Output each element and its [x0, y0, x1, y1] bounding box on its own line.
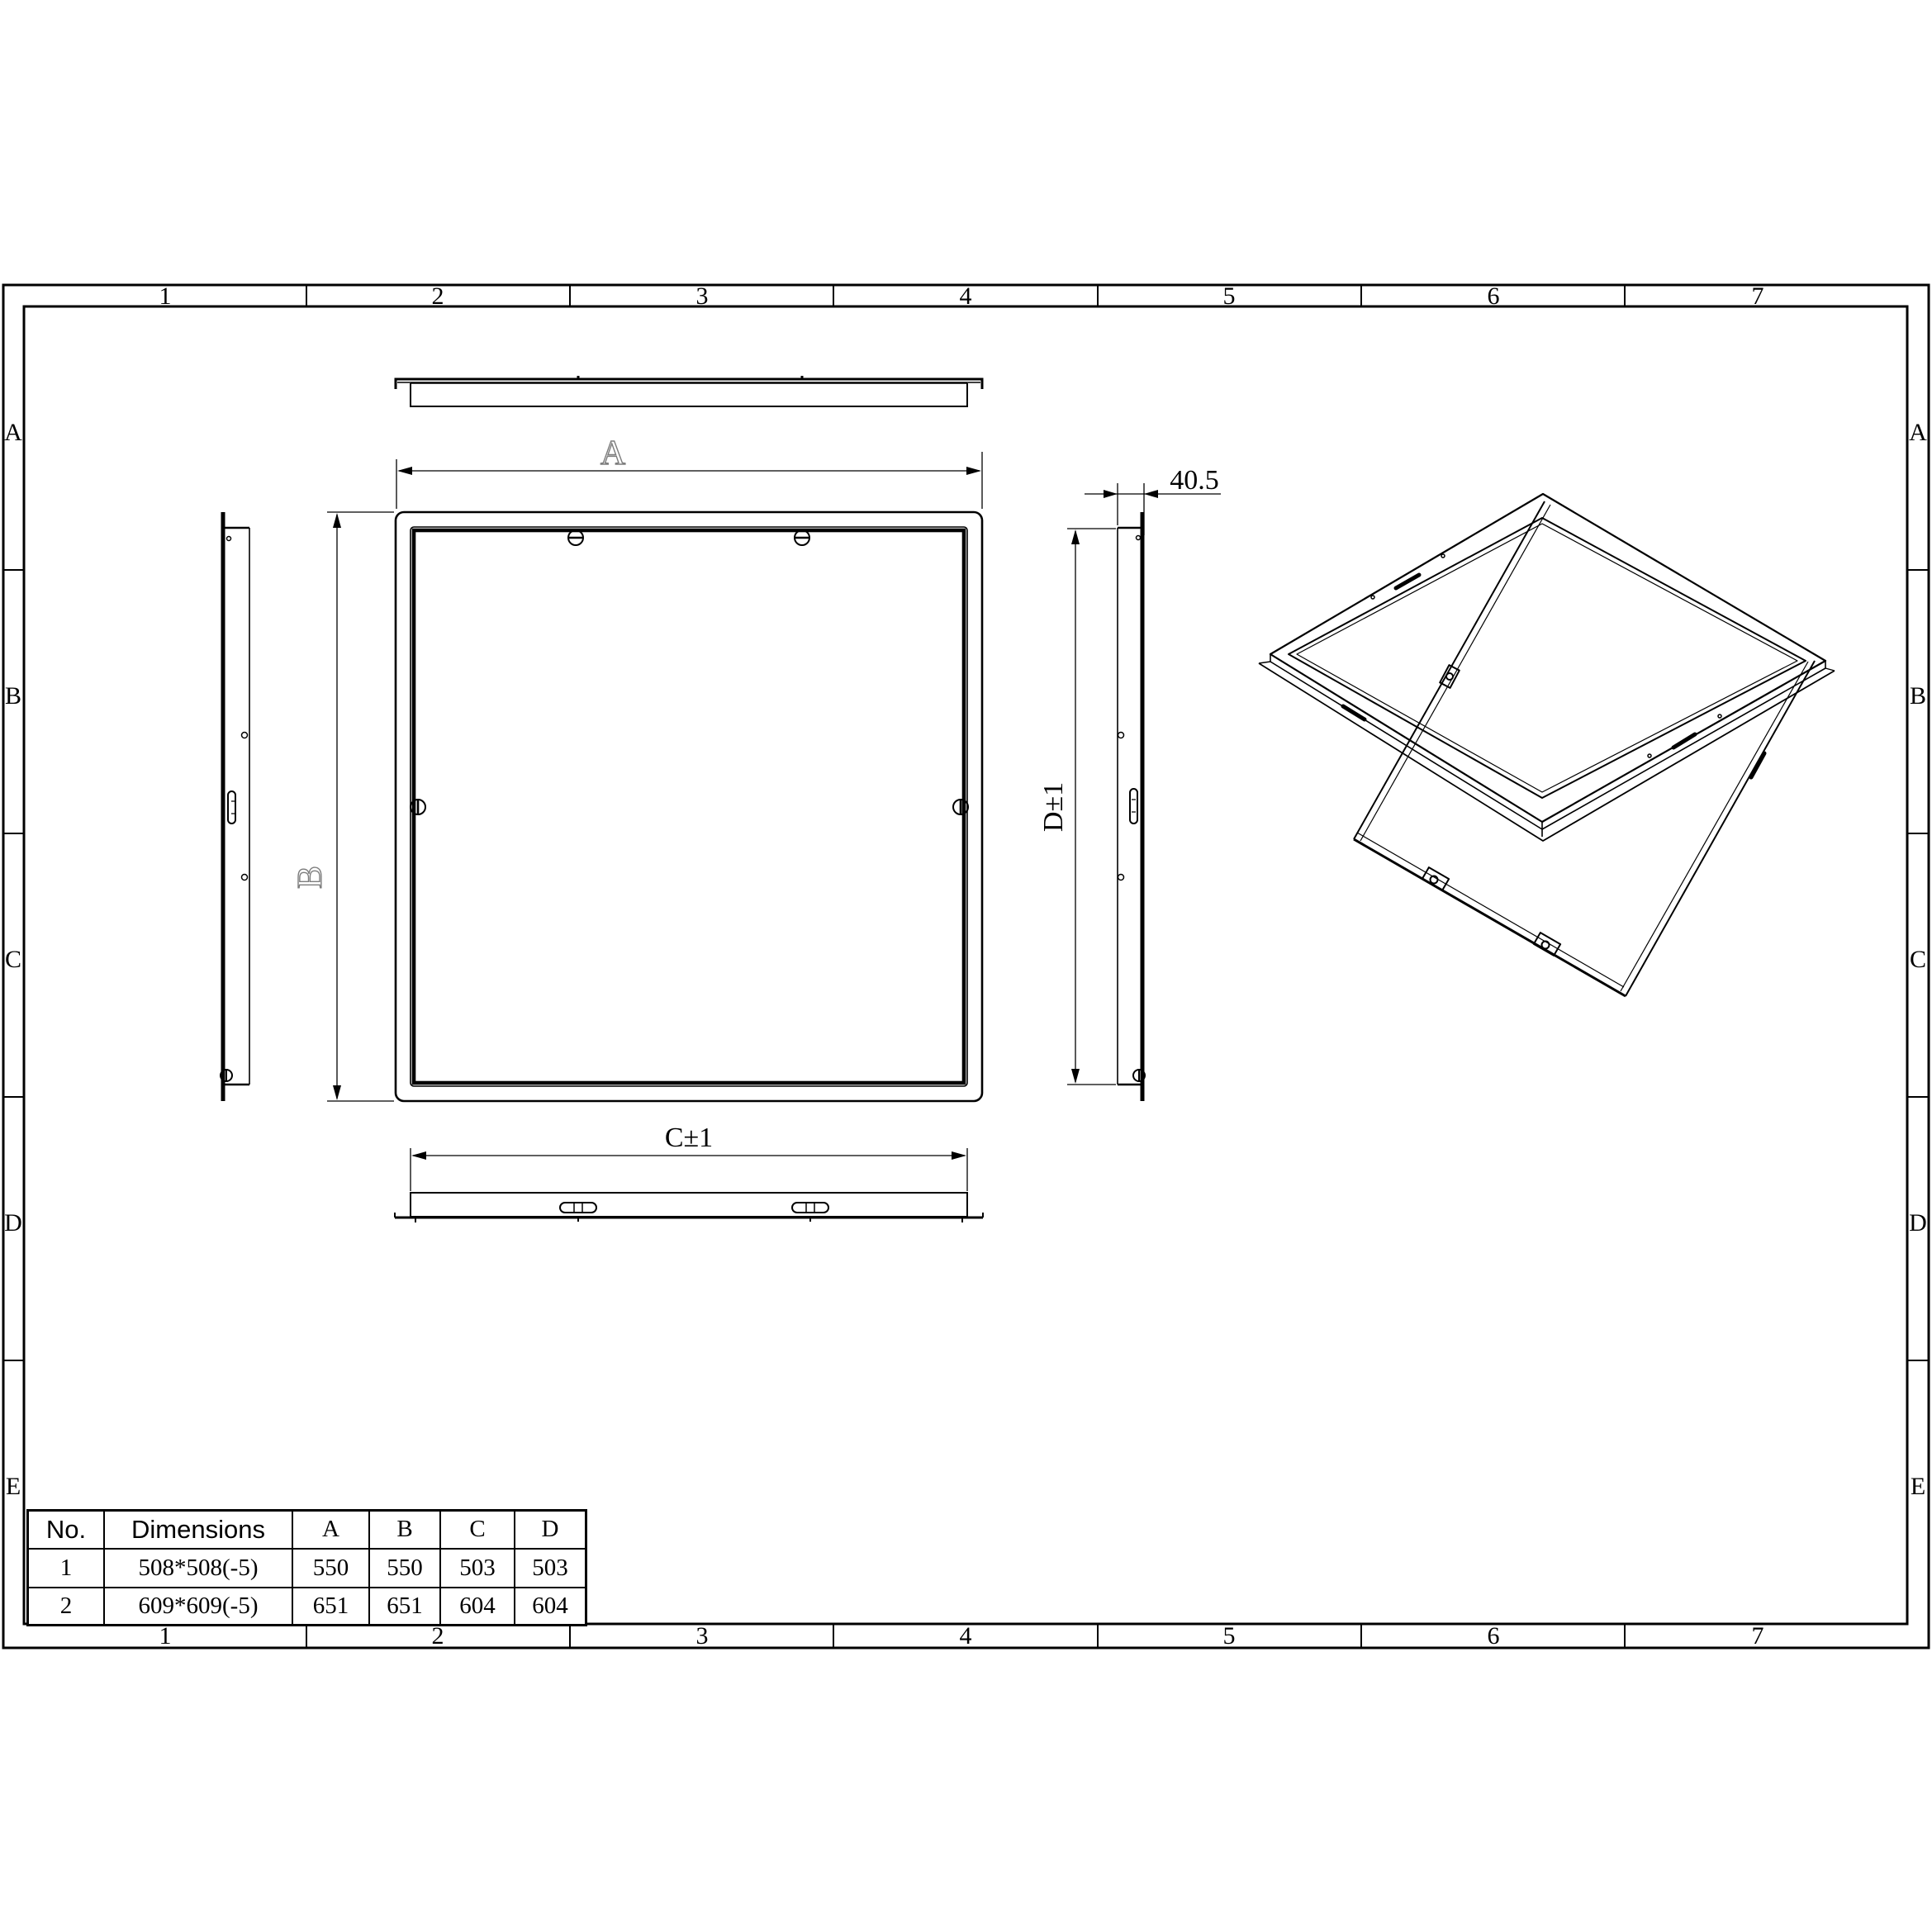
cell-b: 651	[369, 1588, 440, 1626]
grid-col-label: 4	[960, 1622, 972, 1650]
grid-row-label: B	[5, 682, 21, 710]
dimension-outer-width: A	[396, 434, 982, 509]
cell-d: 503	[515, 1549, 586, 1588]
drawing-border	[3, 285, 1929, 1648]
isometric-view	[1259, 494, 1835, 996]
cell-no: 1	[28, 1549, 105, 1588]
left-side-view	[221, 512, 249, 1101]
cell-c: 503	[440, 1549, 515, 1588]
grid-row-labels-right: A B C D E	[1909, 419, 1927, 1500]
grid-col-label: 7	[1752, 1622, 1764, 1650]
dim-label-depth: 40.5	[1170, 465, 1219, 496]
dim-label-B: B	[292, 866, 330, 889]
grid-col-label: 5	[1223, 282, 1236, 310]
grid-row-label: C	[1910, 946, 1926, 973]
drawing-canvas: 1 2 3 4 5 6 7 1 2 3 4 5 6 7 A B C D E A …	[0, 0, 1932, 1932]
grid-col-label: 5	[1223, 1622, 1236, 1650]
cell-a: 550	[292, 1549, 369, 1588]
grid-row-label: C	[5, 946, 21, 973]
grid-col-label: 3	[696, 282, 709, 310]
mounting-slot	[560, 1203, 828, 1213]
front-view	[396, 512, 982, 1101]
grid-row-label: B	[1910, 682, 1926, 710]
grid-row-labels-left: A B C D E	[4, 419, 22, 1500]
bottom-view	[395, 1193, 983, 1222]
dimension-depth: 40.5	[1085, 465, 1222, 535]
dim-label-C: C±1	[665, 1123, 713, 1153]
col-header-dimensions: Dimensions	[104, 1511, 292, 1549]
col-header-b: B	[369, 1511, 440, 1549]
grid-row-label: E	[1911, 1473, 1925, 1500]
grid-row-label: A	[1909, 419, 1927, 446]
cell-c: 604	[440, 1588, 515, 1626]
grid-col-label: 6	[1488, 282, 1500, 310]
dimension-outer-height: B	[292, 512, 394, 1101]
col-header-no: No.	[28, 1511, 105, 1549]
grid-col-label: 3	[696, 1622, 709, 1650]
top-view	[396, 376, 982, 406]
dim-label-A: A	[600, 434, 626, 472]
dim-label-D: D±1	[1038, 782, 1069, 832]
dimensions-table: No. Dimensions A B C D 1 508*508(-5) 550…	[26, 1509, 587, 1626]
cell-b: 550	[369, 1549, 440, 1588]
grid-col-label: 2	[432, 282, 444, 310]
cell-dimensions: 609*609(-5)	[104, 1588, 292, 1626]
grid-row-label: E	[6, 1473, 21, 1500]
clip-icon	[1422, 665, 1560, 956]
grid-col-label: 4	[960, 282, 972, 310]
dimension-opening-height: D±1	[1038, 529, 1116, 1085]
screw-icon	[411, 530, 968, 814]
cell-dimensions: 508*508(-5)	[104, 1549, 292, 1588]
table-row: 2 609*609(-5) 651 651 604 604	[28, 1588, 586, 1626]
drawing-sheet: 1 2 3 4 5 6 7 1 2 3 4 5 6 7 A B C D E A …	[0, 0, 1932, 1932]
grid-row-label: D	[1909, 1209, 1927, 1237]
cell-no: 2	[28, 1588, 105, 1626]
table-header-row: No. Dimensions A B C D	[28, 1511, 586, 1549]
grid-col-label: 7	[1752, 282, 1764, 310]
col-header-c: C	[440, 1511, 515, 1549]
grid-row-label: A	[4, 419, 22, 446]
col-header-d: D	[515, 1511, 586, 1549]
cell-a: 651	[292, 1588, 369, 1626]
right-side-view	[1118, 512, 1145, 1101]
grid-col-label: 6	[1488, 1622, 1500, 1650]
grid-row-label: D	[4, 1209, 22, 1237]
table-row: 1 508*508(-5) 550 550 503 503	[28, 1549, 586, 1588]
grid-col-label: 1	[159, 282, 172, 310]
dimension-opening-width: C±1	[411, 1123, 967, 1191]
cell-d: 604	[515, 1588, 586, 1626]
col-header-a: A	[292, 1511, 369, 1549]
